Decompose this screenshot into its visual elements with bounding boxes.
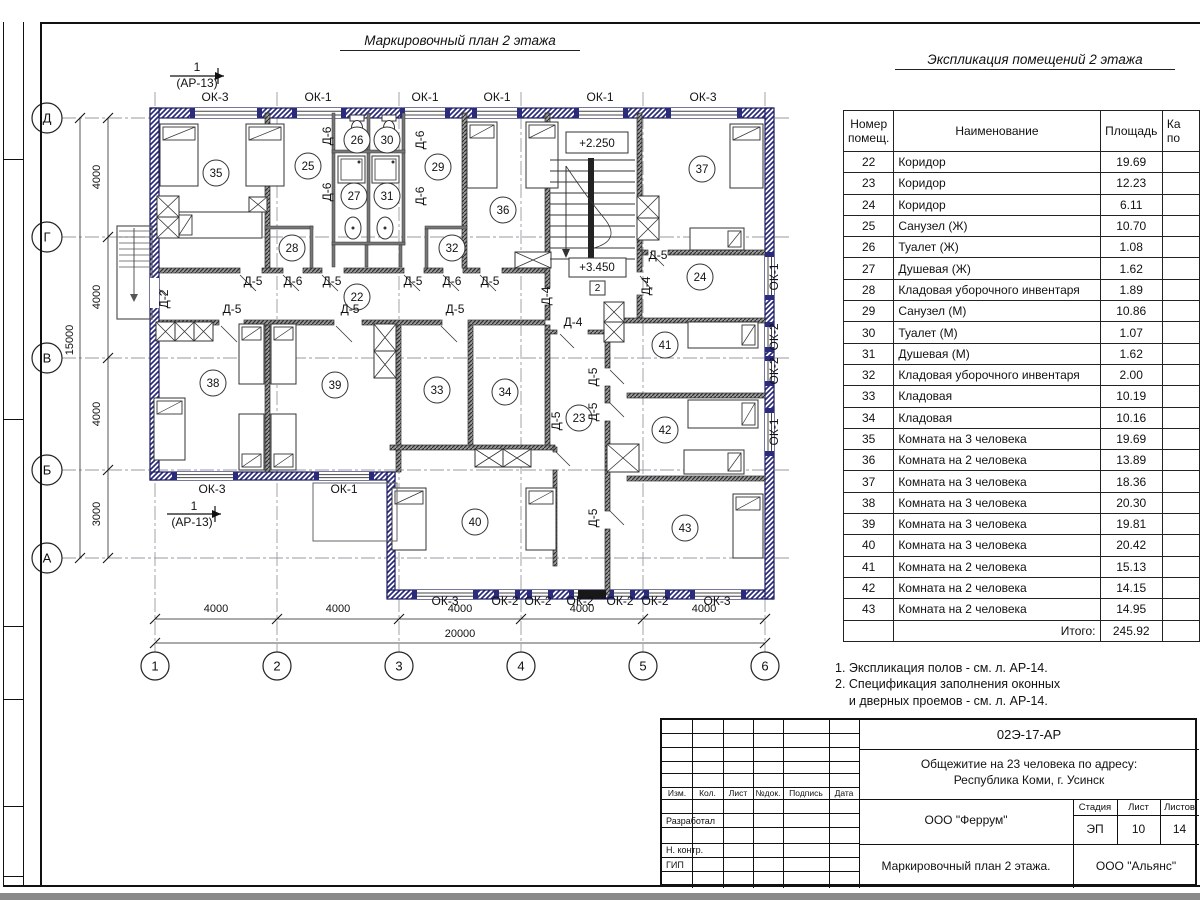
room-number-cell: 28 <box>844 279 894 300</box>
plan-label: Д-6 <box>443 274 462 288</box>
tb-hline <box>662 773 859 774</box>
room-area-cell: 10.16 <box>1100 407 1162 428</box>
room-category-cell <box>1162 237 1199 258</box>
plan-label: Д-6 <box>413 186 427 205</box>
dim-label: 4000 <box>91 402 103 426</box>
room-number: 34 <box>499 387 512 399</box>
room-number: 36 <box>497 205 510 217</box>
room-number-cell: 32 <box>844 364 894 385</box>
drawing-name: Маркировочный план 2 этажа. <box>859 859 1073 873</box>
axis-number: 3 <box>395 659 402 674</box>
window-sill <box>369 472 374 480</box>
window <box>190 108 262 118</box>
room-number: 40 <box>469 517 482 529</box>
plan-label: ОК-3 <box>202 90 229 104</box>
axis-letter: В <box>43 351 52 366</box>
room-name-cell: Санузел (Ж) <box>894 215 1100 236</box>
table-row: 30Туалет (М)1.07 <box>844 322 1200 343</box>
project-name-line2: Республика Коми, г. Усинск <box>859 773 1199 787</box>
designer-org: ООО "Феррум" <box>859 813 1073 827</box>
notes: 1. Экспликация полов - см. л. АР-14.2. С… <box>835 660 1060 709</box>
room-number: 38 <box>207 378 220 390</box>
axis-number: 6 <box>761 659 768 674</box>
room-number: 33 <box>431 385 444 397</box>
interior-wall <box>627 476 765 481</box>
sec-label: 1 <box>194 60 201 74</box>
room-area-cell: 19.69 <box>1100 428 1162 449</box>
table-row: 28Кладовая уборочного инвентаря1.89 <box>844 279 1200 300</box>
window <box>666 108 742 118</box>
room-number: 32 <box>446 243 459 255</box>
plan-label: ОК-3 <box>690 90 717 104</box>
room-category-cell <box>1162 407 1199 428</box>
interior-wall <box>424 268 443 273</box>
sheets-value: 14 <box>1160 822 1199 836</box>
table-row: 31Душевая (М)1.62 <box>844 343 1200 364</box>
room-number: 28 <box>286 243 299 255</box>
plan-title: Маркировочный план 2 этажа <box>340 33 580 51</box>
dim-label: 4000 <box>91 165 103 189</box>
window-sill <box>741 590 746 599</box>
table-row: 38Комната на 3 человека20.30 <box>844 492 1200 513</box>
room-number: 29 <box>432 162 445 174</box>
window-sill <box>690 590 695 599</box>
room-category-cell <box>1162 428 1199 449</box>
tb-vline <box>783 720 784 888</box>
tb-vline <box>859 720 860 888</box>
room-area-cell: 6.11 <box>1100 194 1162 215</box>
title-block: 02Э-17-АР Общежитие на 23 человека по ад… <box>660 718 1197 886</box>
table-row: 24Коридор6.11 <box>844 194 1200 215</box>
interior-wall <box>605 386 610 403</box>
door-leaf <box>221 326 237 342</box>
tb-col-label: Кол. <box>692 788 723 798</box>
row-developed-label: Разработал <box>666 816 715 826</box>
margin-cell <box>3 700 24 807</box>
table-row: 40Комната на 3 человека20.42 <box>844 535 1200 556</box>
margin-cell <box>3 420 24 627</box>
partition-wall <box>310 226 313 268</box>
room-name-cell: Комната на 2 человека <box>894 577 1100 598</box>
tb-hline <box>662 843 859 844</box>
table-row: 27Душевая (Ж)1.62 <box>844 258 1200 279</box>
room-area-cell: 1.62 <box>1100 258 1162 279</box>
room-category-cell <box>1162 343 1199 364</box>
room-name-cell: Кладовая уборочного инвентаря <box>894 279 1100 300</box>
room-name-cell: Комната на 3 человека <box>894 535 1100 556</box>
room-number-cell: 31 <box>844 343 894 364</box>
tb-hline <box>1073 815 1199 816</box>
tb-hline <box>662 857 859 858</box>
partition-wall <box>332 245 335 267</box>
tb-vline <box>1117 799 1118 844</box>
drawing-sheet: ДГВБА12345635252630273128293236372422383… <box>0 0 1200 900</box>
plan-label: ОК-2 <box>525 594 552 608</box>
room-number-cell: 34 <box>844 407 894 428</box>
scan-edge <box>0 893 1200 900</box>
dim-label: 4000 <box>448 603 472 615</box>
dim-label: 20000 <box>445 628 476 640</box>
shower-drain <box>392 161 395 164</box>
room-name-cell: Туалет (М) <box>894 322 1100 343</box>
tb-col-label: Лист <box>723 788 753 798</box>
elev-label: +2.250 <box>579 138 615 150</box>
margin-cell <box>3 807 24 877</box>
window-sill <box>445 108 450 118</box>
room-number: 31 <box>381 191 394 203</box>
room-name-cell: Кладовая уборочного инвентаря <box>894 364 1100 385</box>
dim-label: 4000 <box>204 603 228 615</box>
door-leaf <box>441 326 457 342</box>
room-number-cell: 38 <box>844 492 894 513</box>
room-number: 27 <box>348 191 361 203</box>
interior-wall <box>588 330 605 334</box>
margin-cell <box>3 22 24 160</box>
room-number: 42 <box>659 425 672 437</box>
dim-label: 3000 <box>91 502 103 526</box>
table-row: 39Комната на 3 человека19.81 <box>844 514 1200 535</box>
room-name-cell: Комната на 2 человека <box>894 450 1100 471</box>
room-area-cell: 2.00 <box>1100 364 1162 385</box>
window-sill <box>412 590 417 599</box>
plan-label: Д-6 <box>320 126 334 145</box>
dim-label: 4000 <box>326 603 350 615</box>
table-row: 29Санузел (М)10.86 <box>844 301 1200 322</box>
room-name-cell: Коридор <box>894 173 1100 194</box>
margin-cell <box>3 627 24 700</box>
tb-hline <box>662 871 859 872</box>
room-area-cell: 10.86 <box>1100 301 1162 322</box>
room-category-cell <box>1162 599 1199 620</box>
room-name-cell: Комната на 2 человека <box>894 556 1100 577</box>
tb-hline <box>859 844 1199 845</box>
room-name-cell: Комната на 3 человека <box>894 514 1100 535</box>
room-category-cell <box>1162 471 1199 492</box>
partition-wall <box>399 245 402 267</box>
plan-label: Д-4 <box>539 286 553 305</box>
interior-wall <box>545 305 550 320</box>
window-sill <box>472 108 477 118</box>
window-sill <box>314 472 319 480</box>
note-line: 2. Спецификация заполнения оконных <box>835 676 1060 692</box>
plan-label: Д-5 <box>341 302 360 316</box>
sink-drain <box>352 227 355 230</box>
room-number: 41 <box>659 340 672 352</box>
room-number-cell: 26 <box>844 237 894 258</box>
col-area: Площадь <box>1100 111 1162 152</box>
room-name-cell: Коридор <box>894 194 1100 215</box>
table-row: 34Кладовая10.16 <box>844 407 1200 428</box>
interior-wall <box>642 250 648 255</box>
table-row: 33Кладовая10.19 <box>844 386 1200 407</box>
room-number-cell: 23 <box>844 173 894 194</box>
room-number-cell: 40 <box>844 535 894 556</box>
window-sill <box>765 252 774 257</box>
plan-label: Д-5 <box>549 411 563 430</box>
plan-label: ОК-2 <box>607 594 634 608</box>
room-number-cell: 43 <box>844 599 894 620</box>
frame-left <box>40 22 42 886</box>
plan-label: Д-5 <box>446 302 465 316</box>
table-row: 26Туалет (Ж)1.08 <box>844 237 1200 258</box>
interior-wall <box>159 268 240 273</box>
axis-number: 4 <box>517 659 524 674</box>
explication-table: Номерпомещ.НаименованиеПлощадьКапо22Кори… <box>843 110 1200 642</box>
window <box>574 108 628 118</box>
note-line: и дверных проемов - см. л. АР-14. <box>835 693 1060 709</box>
partition-wall <box>402 113 405 245</box>
room-number-cell: 35 <box>844 428 894 449</box>
room-area-cell: 1.08 <box>1100 237 1162 258</box>
room-name-cell: Душевая (М) <box>894 343 1100 364</box>
room-number-cell: 33 <box>844 386 894 407</box>
room-category-cell <box>1162 258 1199 279</box>
door-leaf <box>560 334 574 348</box>
plan-label: Д-5 <box>223 302 242 316</box>
plan-label: Д-4 <box>564 315 583 329</box>
room-category-cell <box>1162 577 1199 598</box>
room-name-cell: Комната на 3 человека <box>894 492 1100 513</box>
total-row: Итого:245.92 <box>844 620 1200 641</box>
room-category-cell <box>1162 492 1199 513</box>
room-area-cell: 20.30 <box>1100 492 1162 513</box>
partition-wall <box>365 245 368 267</box>
partition-wall <box>425 226 467 229</box>
room-area-cell: 10.19 <box>1100 386 1162 407</box>
interior-wall <box>502 268 545 273</box>
room-number-cell: 25 <box>844 215 894 236</box>
plan-label: ОК-3 <box>199 482 226 496</box>
room-area-cell: 19.69 <box>1100 152 1162 173</box>
room-number: 30 <box>381 135 394 147</box>
window-sill <box>172 472 177 480</box>
room-number: 23 <box>573 413 586 425</box>
interior-wall <box>545 268 550 288</box>
total-value: 245.92 <box>1100 620 1162 641</box>
room-category-cell <box>1162 173 1199 194</box>
door-leaf <box>556 452 570 466</box>
small-label: 2 <box>595 283 601 294</box>
plan-label: Д-5 <box>323 274 342 288</box>
row-gip-label: ГИП <box>666 860 684 870</box>
room-number: 35 <box>210 168 223 180</box>
room-area-cell: 10.70 <box>1100 215 1162 236</box>
room-name-cell: Кладовая <box>894 407 1100 428</box>
room-name-cell: Туалет (Ж) <box>894 237 1100 258</box>
room-category-cell <box>1162 535 1199 556</box>
plan-label: ОК-2 <box>767 357 781 384</box>
row-ncontr-label: Н. контр. <box>666 845 703 855</box>
plan-label: ОК-2 <box>642 594 669 608</box>
axis-letter: Д <box>43 111 52 126</box>
exterior-wall <box>765 108 774 599</box>
sec-label: (АР-13) <box>171 515 212 529</box>
tb-col-label: Подпись <box>783 788 829 798</box>
room-category-cell <box>1162 301 1199 322</box>
tb-hline <box>859 749 1199 750</box>
dim-label: 4000 <box>91 285 103 309</box>
interior-wall <box>344 268 404 273</box>
explication-title: Экспликация помещений 2 этажа <box>895 52 1175 70</box>
interior-wall <box>262 268 283 273</box>
window-sill <box>574 108 579 118</box>
total-label: Итого: <box>894 620 1100 641</box>
room-number: 37 <box>696 164 709 176</box>
window-sill <box>765 295 774 300</box>
window-sill <box>190 108 195 118</box>
plan-label: Д-5 <box>586 402 600 421</box>
table-row: 25Санузел (Ж)10.70 <box>844 215 1200 236</box>
shower-drain <box>358 161 361 164</box>
window <box>472 108 522 118</box>
client-org: ООО "Альянс" <box>1073 859 1199 873</box>
room-category-cell <box>1162 364 1199 385</box>
room-number: 43 <box>679 523 692 535</box>
room-number-cell: 37 <box>844 471 894 492</box>
room-area-cell: 14.15 <box>1100 577 1162 598</box>
room-number-cell: 42 <box>844 577 894 598</box>
room-number: 39 <box>329 380 342 392</box>
axis-letter: А <box>43 551 52 566</box>
room-name-cell: Комната на 2 человека <box>894 599 1100 620</box>
window <box>314 472 374 480</box>
axis-number: 1 <box>151 659 158 674</box>
room-category-cell <box>1162 279 1199 300</box>
room-category-cell <box>1162 215 1199 236</box>
interior-wall <box>468 320 545 325</box>
room-number-cell: 24 <box>844 194 894 215</box>
table-row: 42Комната на 2 человека14.15 <box>844 577 1200 598</box>
plan-label: ОК-1 <box>412 90 439 104</box>
plan-label: Д-2 <box>157 289 171 308</box>
dim-label: 4000 <box>570 603 594 615</box>
axis-letter: Г <box>43 230 50 245</box>
table-row: 23Коридор12.23 <box>844 173 1200 194</box>
interior-wall <box>637 250 642 272</box>
room-category-cell <box>1162 556 1199 577</box>
interior-wall <box>637 295 642 318</box>
door-leaf <box>336 326 352 342</box>
tb-col-label: Дата <box>829 788 859 798</box>
tb-hline <box>662 813 859 814</box>
plan-label: Д-6 <box>413 130 427 149</box>
tb-vline <box>753 720 754 888</box>
interior-wall <box>265 325 270 472</box>
sec-label: (АР-13) <box>176 76 217 90</box>
external-stair-arrow-head <box>130 294 138 302</box>
window-sill <box>257 108 262 118</box>
door-leaf <box>610 370 624 384</box>
room-number: 25 <box>302 161 315 173</box>
room-category-cell <box>1162 194 1199 215</box>
col-category-cut: Капо <box>1162 111 1199 152</box>
plan-label: Д-5 <box>586 367 600 386</box>
window-sill <box>737 108 742 118</box>
table-row: 43Комната на 2 человека14.95 <box>844 599 1200 620</box>
axis-letter: Б <box>43 463 52 478</box>
tb-vline <box>723 720 724 888</box>
room-area-cell: 1.62 <box>1100 343 1162 364</box>
tb-hline <box>662 747 859 748</box>
room-area-cell: 15.13 <box>1100 556 1162 577</box>
plan-label: Д-5 <box>649 248 668 262</box>
section-mark-arrow <box>212 510 221 518</box>
interior-wall <box>553 447 557 452</box>
interior-wall <box>605 529 610 595</box>
window <box>292 108 346 118</box>
room-category-cell <box>1162 514 1199 535</box>
plan-label: ОК-2 <box>767 323 781 350</box>
window-sill <box>765 451 774 456</box>
total-cut <box>1162 620 1199 641</box>
col-number: Номерпомещ. <box>844 111 894 152</box>
room-number-cell: 27 <box>844 258 894 279</box>
interior-wall <box>545 330 557 334</box>
window-sill <box>765 408 774 413</box>
table-row: 37Комната на 3 человека18.36 <box>844 471 1200 492</box>
window <box>400 108 450 118</box>
tb-vline <box>829 720 830 888</box>
room-name-cell: Душевая (Ж) <box>894 258 1100 279</box>
stair-stringer <box>588 158 594 264</box>
room-area-cell: 19.81 <box>1100 514 1162 535</box>
note-line: 1. Экспликация полов - см. л. АР-14. <box>835 660 1060 676</box>
room-number-cell: 22 <box>844 152 894 173</box>
room-number-cell: 41 <box>844 556 894 577</box>
door-leaf <box>610 511 624 525</box>
doc-number: 02Э-17-АР <box>859 727 1199 742</box>
table-row: 22Коридор19.69 <box>844 152 1200 173</box>
sheets-label: Листов <box>1160 802 1199 813</box>
tb-hline <box>662 799 1199 800</box>
frame-top <box>40 22 1200 24</box>
room-number: 24 <box>694 272 707 284</box>
window-sill <box>623 108 628 118</box>
plan-label: Д-6 <box>284 274 303 288</box>
tb-col-label: №док. <box>753 788 783 798</box>
room-area-cell: 18.36 <box>1100 471 1162 492</box>
room-area-cell: 20.42 <box>1100 535 1162 556</box>
plan-label: ОК-1 <box>587 90 614 104</box>
sink-drain <box>384 227 387 230</box>
tb-vline <box>692 720 693 888</box>
room-area-cell: 1.89 <box>1100 279 1162 300</box>
plan-label: Д-5 <box>481 274 500 288</box>
room-category-cell <box>1162 152 1199 173</box>
window-sill <box>341 108 346 118</box>
tb-hline <box>662 761 859 762</box>
room-name-cell: Санузел (М) <box>894 301 1100 322</box>
plan-label: ОК-1 <box>305 90 332 104</box>
room-area-cell: 14.95 <box>1100 599 1162 620</box>
room-name-cell: Комната на 3 человека <box>894 471 1100 492</box>
tb-vline <box>1160 799 1161 844</box>
axis-number: 2 <box>273 659 280 674</box>
stage-label: Стадия <box>1073 802 1117 813</box>
tb-col-label: Изм. <box>662 788 692 798</box>
room-name-cell: Кладовая <box>894 386 1100 407</box>
plan-label: ОК-1 <box>331 482 358 496</box>
dim-label: 15000 <box>64 325 76 356</box>
room-category-cell <box>1162 450 1199 471</box>
room-area-cell: 12.23 <box>1100 173 1162 194</box>
plan-label: Д-5 <box>586 508 600 527</box>
room-number-cell: 39 <box>844 514 894 535</box>
plan-label: ОК-1 <box>484 90 511 104</box>
sec-label: 1 <box>191 499 198 513</box>
table-row: 32Кладовая уборочного инвентаря2.00 <box>844 364 1200 385</box>
room-area-cell: 1.07 <box>1100 322 1162 343</box>
